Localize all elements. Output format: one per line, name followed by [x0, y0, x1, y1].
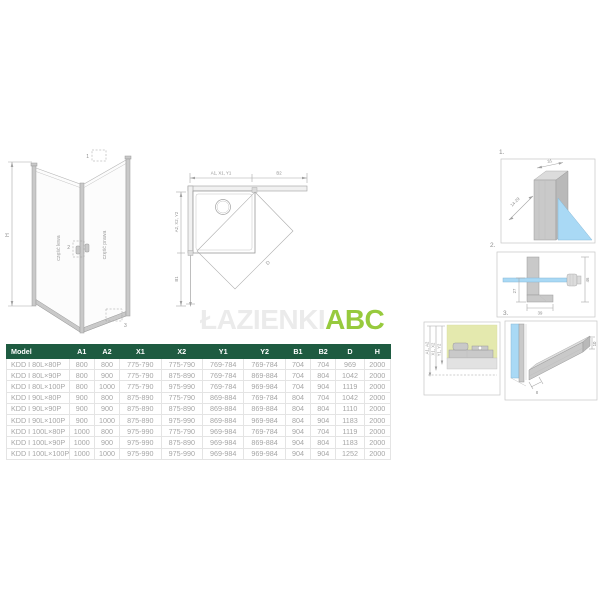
value-cell: 704 [311, 426, 336, 437]
right-wall-profile-cap [125, 156, 131, 159]
handle-icon [76, 246, 80, 254]
col-header-d: D [336, 345, 364, 359]
value-cell: 800 [69, 359, 94, 370]
tray-band [447, 358, 497, 369]
col-header-b2: B2 [311, 345, 336, 359]
value-cell: 875-890 [120, 414, 161, 425]
model-cell: KDD I 100L×80P [7, 426, 70, 437]
value-cell: 1042 [336, 392, 364, 403]
table-header-row: ModelA1A2X1X2Y1Y2B1B2DH [7, 345, 391, 359]
model-cell: KDD I 80L×90P [7, 370, 70, 381]
table-row: KDD I 90L×100P9001000875-890975-990869-8… [7, 414, 391, 425]
left-wall-profile [32, 166, 36, 306]
value-cell: 800 [94, 426, 119, 437]
value-cell: 775-790 [161, 392, 202, 403]
right-panel-label: część prawa [102, 230, 108, 259]
value-cell: 800 [69, 381, 94, 392]
value-cell: 900 [94, 437, 119, 448]
value-cell: 900 [69, 414, 94, 425]
wallref-dim-outer: A1, A2 [425, 341, 430, 354]
plan-dim-top-right: B2 [276, 171, 282, 176]
value-cell: 2000 [364, 370, 390, 381]
value-cell: 775-790 [120, 370, 161, 381]
value-cell: 769-784 [202, 359, 243, 370]
value-cell: 769-784 [244, 359, 285, 370]
table-row: KDD I 80L×80P800800775-790775-790769-784… [7, 359, 391, 370]
value-cell: 704 [285, 359, 310, 370]
col-header-a2: A2 [94, 345, 119, 359]
value-cell: 1000 [69, 437, 94, 448]
edge-profile [519, 324, 524, 382]
callout-box-top [92, 150, 106, 161]
value-cell: 2000 [364, 381, 390, 392]
value-cell: 975-990 [120, 448, 161, 459]
wallref-dim-inner: Y1, Y2 [437, 343, 442, 356]
model-cell: KDD I 90L×100P [7, 414, 70, 425]
value-cell: 704 [285, 381, 310, 392]
value-cell: 800 [94, 392, 119, 403]
value-cell: 904 [285, 426, 310, 437]
model-cell: KDD I 100L×90P [7, 437, 70, 448]
value-cell: 1000 [94, 448, 119, 459]
brand-logo: ŁAZIENKIABC [200, 303, 368, 337]
col-header-y2: Y2 [244, 345, 285, 359]
value-cell: 769-784 [244, 426, 285, 437]
value-cell: 1119 [336, 381, 364, 392]
value-cell: 904 [285, 437, 310, 448]
value-cell: 769-784 [202, 370, 243, 381]
value-cell: 969-984 [244, 381, 285, 392]
spec-table: ModelA1A2X1X2Y1Y2B1B2DH KDD I 80L×80P800… [6, 344, 391, 460]
table-row: KDD I 90L×90P900900875-890875-890869-884… [7, 403, 391, 414]
detail-3-dim-side: 10 [592, 341, 597, 346]
value-cell: 875-890 [120, 403, 161, 414]
iso-drawing: H część lewa część prawa 1 2 3 [2, 146, 162, 338]
value-cell: 704 [311, 359, 336, 370]
value-cell: 1183 [336, 414, 364, 425]
value-cell: 969-984 [202, 437, 243, 448]
value-cell: 704 [285, 370, 310, 381]
value-cell: 1000 [94, 381, 119, 392]
left-wall [188, 186, 193, 253]
value-cell: 900 [94, 403, 119, 414]
value-cell: 969-984 [202, 426, 243, 437]
table-row: KDD I 80L×100P8001000775-790975-990769-7… [7, 381, 391, 392]
value-cell: 975-990 [120, 426, 161, 437]
value-cell: 869-884 [202, 392, 243, 403]
knob-icon [567, 274, 577, 286]
table-row: KDD I 100L×100P10001000975-990975-990969… [7, 448, 391, 459]
table-row: KDD I 80L×90P800900775-790875-890769-784… [7, 370, 391, 381]
detail-2-dim-left: 27 [512, 288, 517, 293]
value-cell: 775-790 [161, 426, 202, 437]
value-cell: 969-984 [202, 448, 243, 459]
col-header-a1: A1 [69, 345, 94, 359]
shower-tray [193, 191, 255, 253]
datasheet-page: H część lewa część prawa 1 2 3 [0, 0, 600, 600]
plan-dim-left-bottom: B1 [174, 276, 179, 282]
value-cell: 869-884 [202, 414, 243, 425]
value-cell: 775-790 [120, 381, 161, 392]
value-cell: 969-984 [244, 448, 285, 459]
value-cell: 804 [311, 403, 336, 414]
glass-section [503, 278, 567, 282]
detail-3-label: 3. [503, 310, 508, 317]
knob-cap [577, 276, 581, 284]
wall-profile-silhouette [449, 350, 493, 358]
value-cell: 875-890 [161, 403, 202, 414]
value-cell: 2000 [364, 437, 390, 448]
brand-watermark: ŁAZIENKI [200, 304, 325, 335]
table-row: KDD I 100L×80P1000800975-990775-790969-9… [7, 426, 391, 437]
value-cell: 804 [285, 414, 310, 425]
value-cell: 900 [94, 370, 119, 381]
value-cell: 975-990 [161, 414, 202, 425]
col-header-h: H [364, 345, 390, 359]
value-cell: 2000 [364, 414, 390, 425]
value-cell: 869-884 [244, 403, 285, 414]
model-cell: KDD I 90L×80P [7, 392, 70, 403]
value-cell: 800 [94, 359, 119, 370]
screw-hole [478, 346, 482, 350]
value-cell: 1110 [336, 403, 364, 414]
spec-table-wrap: ModelA1A2X1X2Y1Y2B1B2DH KDD I 80L×80P800… [6, 344, 391, 460]
value-cell: 775-790 [120, 359, 161, 370]
value-cell: 704 [311, 392, 336, 403]
detail-2-dim-bottom: 39 [538, 311, 543, 316]
value-cell: 2000 [364, 403, 390, 414]
value-cell: 1119 [336, 426, 364, 437]
table-row: KDD I 100L×90P1000900975-990875-890969-9… [7, 437, 391, 448]
value-cell: 2000 [364, 392, 390, 403]
value-cell: 1000 [69, 448, 94, 459]
top-wall [188, 186, 307, 191]
wall-reference-drawing: A1, A2 X1, X2 Y1, Y2 [423, 320, 502, 398]
value-cell: 804 [311, 437, 336, 448]
value-cell: 904 [311, 448, 336, 459]
col-header-x2: X2 [161, 345, 202, 359]
detail-3-drawing: 8 10 [503, 318, 598, 402]
col-header-x1: X1 [120, 345, 161, 359]
center-profile [80, 183, 84, 333]
col-header-b1: B1 [285, 345, 310, 359]
detail-2-dim-right: 46 [585, 277, 590, 282]
value-cell: 869-884 [244, 370, 285, 381]
value-cell: 875-890 [161, 437, 202, 448]
value-cell: 769-784 [202, 381, 243, 392]
hinge-left [188, 251, 193, 256]
value-cell: 904 [311, 381, 336, 392]
value-cell: 1000 [94, 414, 119, 425]
value-cell: 875-890 [120, 392, 161, 403]
value-cell: 975-990 [120, 437, 161, 448]
left-wall-profile-cap [31, 163, 37, 166]
value-cell: 969-984 [244, 414, 285, 425]
detail-1-drawing: 31 14-29 [500, 156, 596, 245]
value-cell: 804 [285, 403, 310, 414]
value-cell: 1183 [336, 437, 364, 448]
col-header-model: Model [7, 345, 70, 359]
value-cell: 1042 [336, 370, 364, 381]
value-cell: 904 [285, 448, 310, 459]
callout-handle-label: 2 [67, 245, 70, 251]
value-cell: 804 [285, 392, 310, 403]
value-cell: 869-884 [202, 403, 243, 414]
hinge-top [252, 188, 257, 193]
plan-dim-diagonal: D [265, 260, 272, 267]
detail-2-drawing: 27 39 46 [495, 249, 596, 319]
value-cell: 975-990 [161, 381, 202, 392]
detail-1-label: 1. [499, 149, 504, 156]
value-cell: 969 [336, 359, 364, 370]
value-cell: 904 [311, 414, 336, 425]
glass-edge [511, 324, 519, 378]
value-cell: 804 [311, 370, 336, 381]
value-cell: 769-784 [244, 392, 285, 403]
col-header-y1: Y1 [202, 345, 243, 359]
model-cell: KDD I 80L×100P [7, 381, 70, 392]
plan-dim-top-left: A1, X1, Y1 [211, 171, 232, 176]
left-panel-label: część lewa [56, 235, 62, 260]
brand-name: ABC [325, 304, 384, 335]
callout-top-label: 1 [86, 154, 89, 160]
height-dim-label: H [5, 233, 11, 237]
callout-bottom-label: 3 [124, 323, 127, 329]
plan-view-drawing: A1, X1, Y1 B2 A2, X2, Y2 B1 D [168, 158, 348, 314]
table-row: KDD I 90L×80P900800875-890775-790869-884… [7, 392, 391, 403]
model-cell: KDD I 100L×100P [7, 448, 70, 459]
model-cell: KDD I 90L×90P [7, 403, 70, 414]
handle-icon [85, 244, 89, 252]
value-cell: 975-990 [161, 448, 202, 459]
l-profile-column [527, 257, 539, 295]
model-cell: KDD I 80L×80P [7, 359, 70, 370]
plan-dim-left-top: A2, X2, Y2 [174, 211, 179, 232]
value-cell: 1000 [69, 426, 94, 437]
detail-2-label: 2. [490, 242, 495, 249]
value-cell: 775-790 [161, 359, 202, 370]
value-cell: 2000 [364, 426, 390, 437]
value-cell: 900 [69, 403, 94, 414]
value-cell: 2000 [364, 448, 390, 459]
wallref-dim-middle: X1, X2 [431, 342, 436, 356]
value-cell: 2000 [364, 359, 390, 370]
value-cell: 875-890 [161, 370, 202, 381]
value-cell: 869-884 [244, 437, 285, 448]
value-cell: 900 [69, 392, 94, 403]
right-wall-profile [126, 159, 130, 316]
value-cell: 800 [69, 370, 94, 381]
value-cell: 1252 [336, 448, 364, 459]
